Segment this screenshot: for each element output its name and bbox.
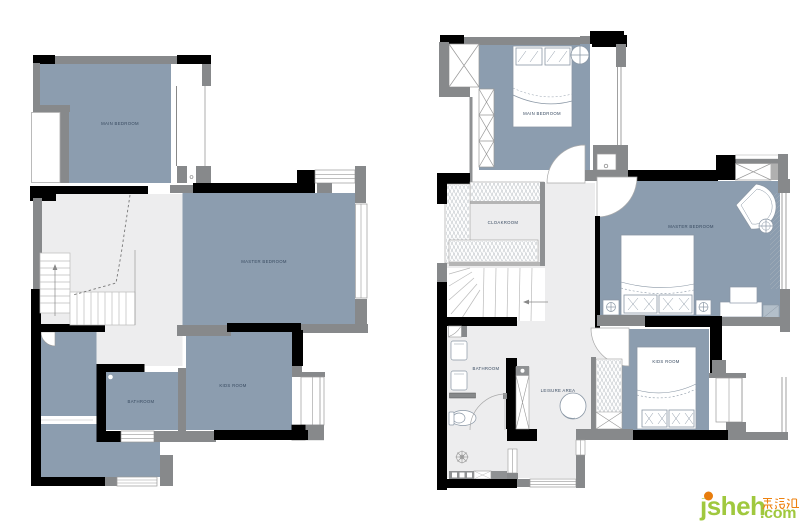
svg-text:MAIN BEDROOM: MAIN BEDROOM: [523, 111, 561, 116]
svg-text:MAIN BEDROOM: MAIN BEDROOM: [101, 121, 139, 126]
svg-text:KIDS ROOM: KIDS ROOM: [652, 359, 679, 364]
svg-text:LEISURE AREA: LEISURE AREA: [541, 388, 576, 393]
svg-text:MASTER BEDROOM: MASTER BEDROOM: [241, 259, 287, 264]
svg-text:KIDS ROOM: KIDS ROOM: [219, 383, 246, 388]
svg-text:CLOAKROOM: CLOAKROOM: [488, 220, 519, 225]
svg-text:BATHROOM: BATHROOM: [128, 399, 155, 404]
svg-text:.com: .com: [760, 505, 796, 522]
svg-text:BATHROOM: BATHROOM: [473, 366, 500, 371]
svg-text:MASTER BEDROOM: MASTER BEDROOM: [668, 224, 714, 229]
